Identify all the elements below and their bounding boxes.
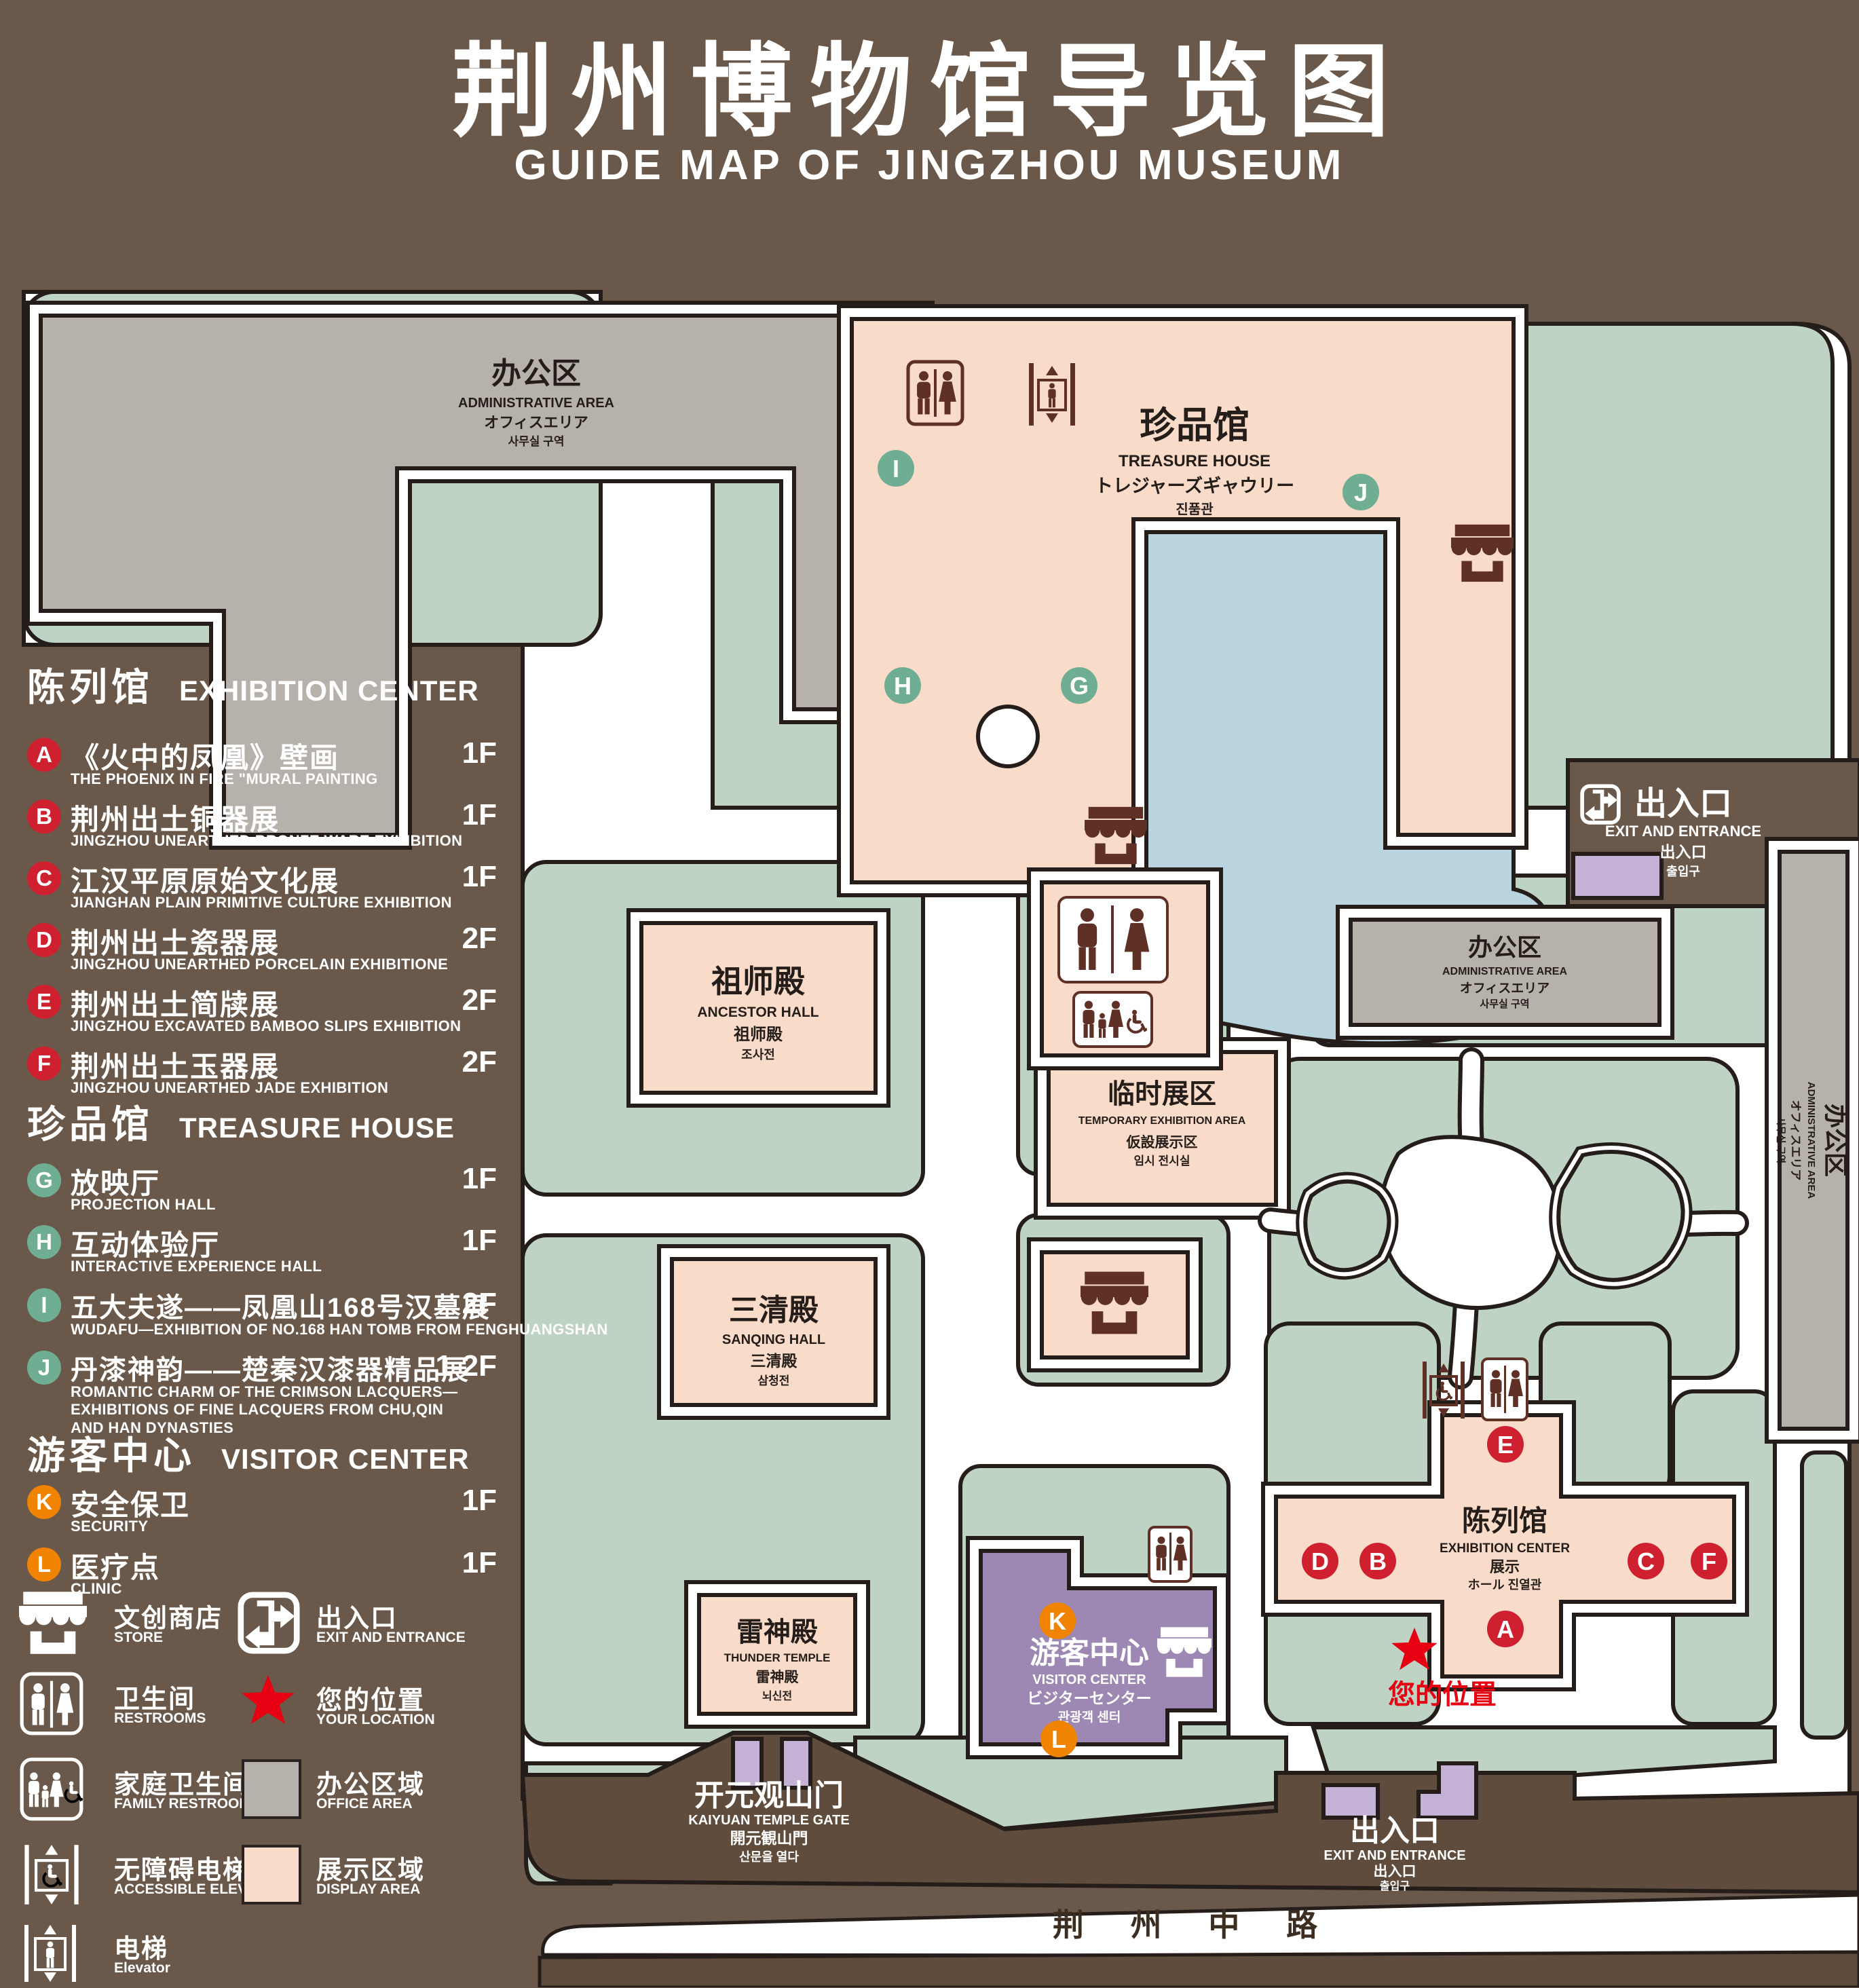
svg-text:K: K	[1049, 1607, 1066, 1635]
item-label-en: THE PHOENIX IN FIRE "MURAL PAINTING	[71, 770, 378, 788]
exhibition-label-l3: 展示	[1490, 1558, 1520, 1575]
legend-item-j: J 丹漆神韵——楚秦汉漆器精品展 ROMANTIC CHARM OF THE C…	[27, 1349, 497, 1409]
sanqing-label-jp: 三清殿	[751, 1352, 798, 1370]
symbol-label-en: FAMILY RESTROOMS	[114, 1796, 261, 1812]
symbol-label-zh: 办公区域	[316, 1763, 425, 1801]
building-ancestor-hall: 祖师殿 ANCESTOR HALL 祖师殿 조사전	[641, 923, 876, 1093]
item-label-en: INTERACTIVE EXPERIENCE HALL	[71, 1258, 322, 1275]
temporary-label-zh: 临时展区	[1108, 1079, 1216, 1109]
svg-text:D: D	[1311, 1548, 1329, 1575]
admin-right-label-zh: 办公区	[1468, 933, 1541, 961]
item-label-en: PROJECTION HALL	[71, 1196, 216, 1214]
item-label-en: JINGZHOU UNEARTHED BRONZE WARE EXHIBITIO…	[71, 832, 462, 850]
exhibition-label-zh: 陈列馆	[1462, 1505, 1547, 1537]
legend-header-treasure: 珍品馆 TREASURE HOUSE	[27, 1094, 455, 1149]
legend-item-i: I 五大夫遂——凤凰山168号汉墓展 WUDAFU—EXHIBITION OF …	[27, 1287, 497, 1347]
legend-header-visitor: 游客中心 VISITOR CENTER	[27, 1425, 470, 1480]
road-label: 荆 州 中 路	[1053, 1907, 1336, 1943]
badge-a: A	[27, 738, 61, 772]
item-floor: 2F	[462, 1045, 497, 1079]
badge-l: L	[27, 1548, 61, 1581]
thunder-label-zh: 雷神殿	[736, 1617, 818, 1647]
symbol-label-zh: 卫生间	[114, 1678, 195, 1715]
symbol-label-en: YOUR LOCATION	[316, 1712, 435, 1728]
svg-text:C: C	[1637, 1548, 1655, 1575]
legend-header-en: EXHIBITION CENTER	[179, 675, 479, 707]
admin-tl-label-en: ADMINISTRATIVE AREA	[458, 396, 614, 411]
svg-text:E: E	[1497, 1431, 1514, 1459]
symbol-label-en: OFFICE AREA	[316, 1796, 413, 1812]
legend-header-exhibition: 陈列馆 EXHIBITION CENTER	[27, 657, 479, 712]
restrooms-icon	[19, 1671, 84, 1736]
legend-symbol-store: 文创商店 STORE	[19, 1592, 87, 1657]
location-star-icon	[242, 1675, 295, 1725]
legend-item-a: A 《火中的凤凰》壁画 THE PHOENIX IN FIRE "MURAL P…	[27, 736, 497, 796]
road-strip-bottom	[540, 1952, 1859, 1987]
badge-e: E	[27, 985, 61, 1019]
symbol-label-en: EXIT AND ENTRANCE	[316, 1630, 466, 1646]
exit-b-zh: 出入口	[1350, 1814, 1440, 1848]
admin-right-label-en: ADMINISTRATIVE AREA	[1442, 966, 1567, 977]
family-restrooms-icon	[1074, 992, 1152, 1047]
building-temporary-exhibition: 临时展区 TEMPORARY EXHIBITION AREA 仮設展示区 임시 …	[1049, 1052, 1276, 1205]
thunder-label-kr: 뇌신전	[762, 1690, 792, 1702]
legend-symbol-elevator: 电梯 Elevator	[19, 1922, 81, 1988]
item-floor: 1F	[462, 1162, 497, 1196]
item-label-zh: 五大夫遂——凤凰山168号汉墓展	[71, 1286, 491, 1325]
badge-b: B	[1359, 1543, 1396, 1579]
visitor-label-zh: 游客中心	[1030, 1636, 1149, 1670]
legend-symbol-accessible-elevator: 无障碍电梯 ACCESSIBLE ELEVATOR	[19, 1842, 84, 1911]
page-title: 荆州博物馆导览图	[0, 10, 1859, 157]
legend-symbol-exit: 出入口 EXIT AND ENTRANCE	[238, 1592, 300, 1657]
svg-text:A: A	[1497, 1615, 1514, 1643]
treasure-label-en: TREASURE HOUSE	[1119, 452, 1271, 470]
badge-g: G	[27, 1163, 61, 1197]
booth-top-right	[1573, 854, 1661, 898]
badge-k: K	[27, 1485, 61, 1519]
symbol-label-zh: 文创商店	[114, 1597, 223, 1634]
ancestor-label-zh: 祖师殿	[711, 964, 805, 999]
visitor-label-en: VISITOR CENTER	[1032, 1672, 1146, 1687]
legend-item-e: E 荆州出土简牍展 JINGZHOU EXCAVATED BAMBOO SLIP…	[27, 983, 497, 1043]
restrooms-icon	[1149, 1527, 1191, 1581]
symbol-label-zh: 出入口	[316, 1597, 398, 1634]
ancestor-label-jp: 祖师殿	[734, 1026, 783, 1044]
admin-tl-label-zh: 办公区	[491, 357, 581, 390]
item-label-en: WUDAFU—EXHIBITION OF NO.168 HAN TOMB FRO…	[71, 1321, 608, 1338]
exit-tr-kr: 출입구	[1666, 864, 1700, 878]
gate-kr: 산문을 열다	[739, 1850, 799, 1864]
legend-item-c: C 江汉平原原始文化展 JIANGHAN PLAIN PRIMITIVE CUL…	[27, 860, 497, 920]
admin-tl-label-kr: 사무실 구역	[508, 435, 565, 448]
booth-bottom-west	[1323, 1785, 1378, 1818]
family-restrooms-icon	[19, 1757, 84, 1822]
visitor-label-jp: ビジターセンター	[1027, 1689, 1152, 1707]
elevator-icon	[19, 1922, 81, 1985]
svg-text:I: I	[893, 455, 899, 483]
badge-f: F	[27, 1047, 61, 1081]
badge-k: K	[1039, 1602, 1076, 1639]
visitor-label-kr: 관광객 센터	[1058, 1710, 1121, 1725]
gate-en: KAIYUAN TEMPLE GATE	[688, 1813, 849, 1828]
guide-map-poster: 办公区 ADMINISTRATIVE AREA オフィスエリア 사무실 구역 珍…	[0, 0, 1859, 1987]
exit-b-jp: 出入口	[1374, 1864, 1416, 1879]
badge-i: I	[27, 1288, 61, 1322]
exit-b-en: EXIT AND ENTRANCE	[1323, 1848, 1465, 1863]
treasure-label-kr: 진품관	[1176, 502, 1214, 517]
item-floor: 2F	[462, 1287, 497, 1321]
symbol-label-en: DISPLAY AREA	[316, 1881, 420, 1898]
legend-symbol-location: 您的位置 YOUR LOCATION	[242, 1675, 295, 1729]
svg-text:J: J	[1354, 479, 1368, 506]
garden-center-lawn	[1381, 1137, 1560, 1308]
legend-header-zh: 珍品馆	[27, 1094, 153, 1149]
badge-e: E	[1487, 1426, 1524, 1463]
svg-text:B: B	[1369, 1548, 1387, 1575]
badge-h: H	[884, 667, 921, 704]
exit-tr-en: EXIT AND ENTRANCE	[1605, 823, 1761, 840]
gate-zh: 开元观山门	[694, 1779, 844, 1812]
office-area-swatch	[242, 1759, 301, 1819]
badge-j: J	[1342, 474, 1379, 510]
item-floor: 1F	[462, 860, 497, 894]
legend-header-zh: 陈列馆	[27, 657, 153, 712]
accessible-elevator-icon	[19, 1842, 84, 1907]
admin-side-label-kr: 사무실 구역	[1776, 1117, 1786, 1163]
badge-l: L	[1040, 1721, 1077, 1757]
legend-item-g: G 放映厅 PROJECTION HALL 1F	[27, 1162, 497, 1222]
admin-side-label-jp: オフィスエリア	[1789, 1100, 1802, 1181]
temporary-label-kr: 임시 전시실	[1134, 1154, 1190, 1167]
exit-icon	[238, 1592, 300, 1654]
store-icon	[19, 1592, 87, 1654]
legend-symbol-family-restrooms: 家庭卫生间 FAMILY RESTROOMS	[19, 1757, 84, 1825]
symbol-label-zh: 电梯	[114, 1928, 168, 1965]
round-bridge	[978, 707, 1038, 766]
badge-b: B	[27, 800, 61, 833]
ancestor-label-en: ANCESTOR HALL	[697, 1005, 819, 1020]
item-floor: 1F	[462, 798, 497, 832]
restrooms-icon	[1059, 897, 1167, 982]
svg-text:F: F	[1702, 1548, 1716, 1575]
treasure-label-zh: 珍品馆	[1140, 405, 1250, 446]
item-floor: 1F	[462, 1224, 497, 1258]
badge-f: F	[1691, 1543, 1727, 1579]
symbol-label-en: Elevator	[114, 1960, 170, 1976]
thunder-label-en: THUNDER TEMPLE	[724, 1651, 831, 1664]
item-label-zh: 丹漆神韵——楚秦汉漆器精品展	[71, 1348, 470, 1387]
badge-d: D	[1302, 1543, 1338, 1579]
admin-right-label-jp: オフィスエリア	[1460, 981, 1550, 996]
garden-island-west	[1305, 1182, 1389, 1271]
item-label-en: SECURITY	[71, 1518, 148, 1535]
temporary-label-jp: 仮設展示区	[1126, 1134, 1198, 1150]
admin-side-label-zh: 办公区	[1822, 1104, 1849, 1177]
badge-c: C	[1628, 1543, 1664, 1579]
treasure-label-jp: トレジャーズギャウリー	[1095, 475, 1294, 496]
symbol-label-en: RESTROOMS	[114, 1710, 206, 1727]
building-thunder-temple: 雷神殿 THUNDER TEMPLE 雷神殿 뇌신전	[699, 1595, 855, 1714]
building-sanqing-hall: 三清殿 SANQING HALL 三清殿 삼청전	[672, 1259, 876, 1405]
item-floor: 1F	[462, 736, 497, 770]
legend-symbol-restrooms: 卫生间 RESTROOMS	[19, 1671, 84, 1740]
item-label-en: JIANGHAN PLAIN PRIMITIVE CULTURE EXHIBIT…	[71, 894, 452, 912]
temporary-label-en: TEMPORARY EXHIBITION AREA	[1078, 1115, 1246, 1127]
item-floor: 1-2F	[436, 1349, 497, 1383]
exhibition-label-en: EXHIBITION CENTER	[1440, 1541, 1570, 1556]
building-store-block	[1042, 1252, 1188, 1357]
badge-a: A	[1487, 1611, 1524, 1647]
thunder-label-jp: 雷神殿	[756, 1669, 800, 1685]
sanqing-label-en: SANQING HALL	[722, 1332, 825, 1347]
legend-item-k: K 安全保卫 SECURITY 1F	[27, 1484, 497, 1543]
badge-i: I	[878, 450, 914, 487]
item-floor: 2F	[462, 922, 497, 956]
legend-item-h: H 互动体验厅 INTERACTIVE EXPERIENCE HALL 1F	[27, 1224, 497, 1283]
symbol-label-zh: 家庭卫生间	[114, 1763, 250, 1801]
garden-island-east	[1558, 1152, 1683, 1280]
legend-item-d: D 荆州出土瓷器展 JINGZHOU UNEARTHED PORCELAIN E…	[27, 922, 497, 981]
item-floor: 1F	[462, 1546, 497, 1580]
item-label-en: JINGZHOU UNEARTHED PORCELAIN EXHIBITIONE	[71, 956, 448, 973]
symbol-label-zh: 您的位置	[316, 1679, 425, 1717]
item-floor: 1F	[462, 1484, 497, 1518]
restrooms-icon	[1482, 1359, 1527, 1420]
exit-tr-jp: 出入口	[1660, 843, 1707, 861]
display-area-swatch	[242, 1845, 301, 1905]
sanqing-label-kr: 삼청전	[758, 1374, 790, 1387]
exit-tr-zh: 出入口	[1634, 786, 1732, 822]
badge-g: G	[1061, 667, 1097, 704]
admin-right-label-kr: 사무실 구역	[1480, 998, 1529, 1010]
exit-b-kr: 출입구	[1380, 1880, 1410, 1892]
symbol-label-zh: 展示区域	[316, 1849, 425, 1886]
item-floor: 2F	[462, 983, 497, 1017]
admin-tl-label-jp: オフィスエリア	[484, 414, 588, 431]
building-admin-side: 办公区 ADMINISTRATIVE AREA オフィスエリア 사무실 구역	[1776, 852, 1849, 1429]
svg-text:L: L	[1051, 1725, 1066, 1753]
badge-h: H	[27, 1225, 61, 1259]
building-admin-right: 办公区 ADMINISTRATIVE AREA オフィスエリア 사무실 구역	[1351, 920, 1659, 1025]
admin-side-label-en: ADMINISTRATIVE AREA	[1805, 1082, 1817, 1199]
badge-j: J	[27, 1351, 61, 1385]
legend-header-zh: 游客中心	[27, 1425, 195, 1480]
symbol-label-zh: 无障碍电梯	[114, 1849, 250, 1886]
green-far-right	[1802, 1452, 1846, 1738]
sanqing-label-zh: 三清殿	[729, 1294, 819, 1327]
legend-header-en: TREASURE HOUSE	[179, 1112, 455, 1144]
symbol-label-en: STORE	[114, 1630, 163, 1646]
page-subtitle: GUIDE MAP OF JINGZHOU MUSEUM	[0, 141, 1859, 189]
your-location-label: 您的位置	[1388, 1680, 1497, 1710]
badge-d: D	[27, 923, 61, 957]
gate-jp: 開元観山門	[730, 1829, 808, 1847]
badge-c: C	[27, 861, 61, 895]
exhibition-label-l4: ホール 진열관	[1468, 1578, 1542, 1592]
item-label-en: JINGZHOU EXCAVATED BAMBOO SLIPS EXHIBITI…	[71, 1017, 461, 1035]
legend-item-b: B 荆州出土铜器展 JINGZHOU UNEARTHED BRONZE WARE…	[27, 798, 497, 858]
legend-header-en: VISITOR CENTER	[221, 1443, 470, 1476]
svg-text:G: G	[1070, 672, 1089, 700]
svg-text:H: H	[894, 672, 912, 700]
ancestor-label-kr: 조사전	[741, 1048, 775, 1062]
